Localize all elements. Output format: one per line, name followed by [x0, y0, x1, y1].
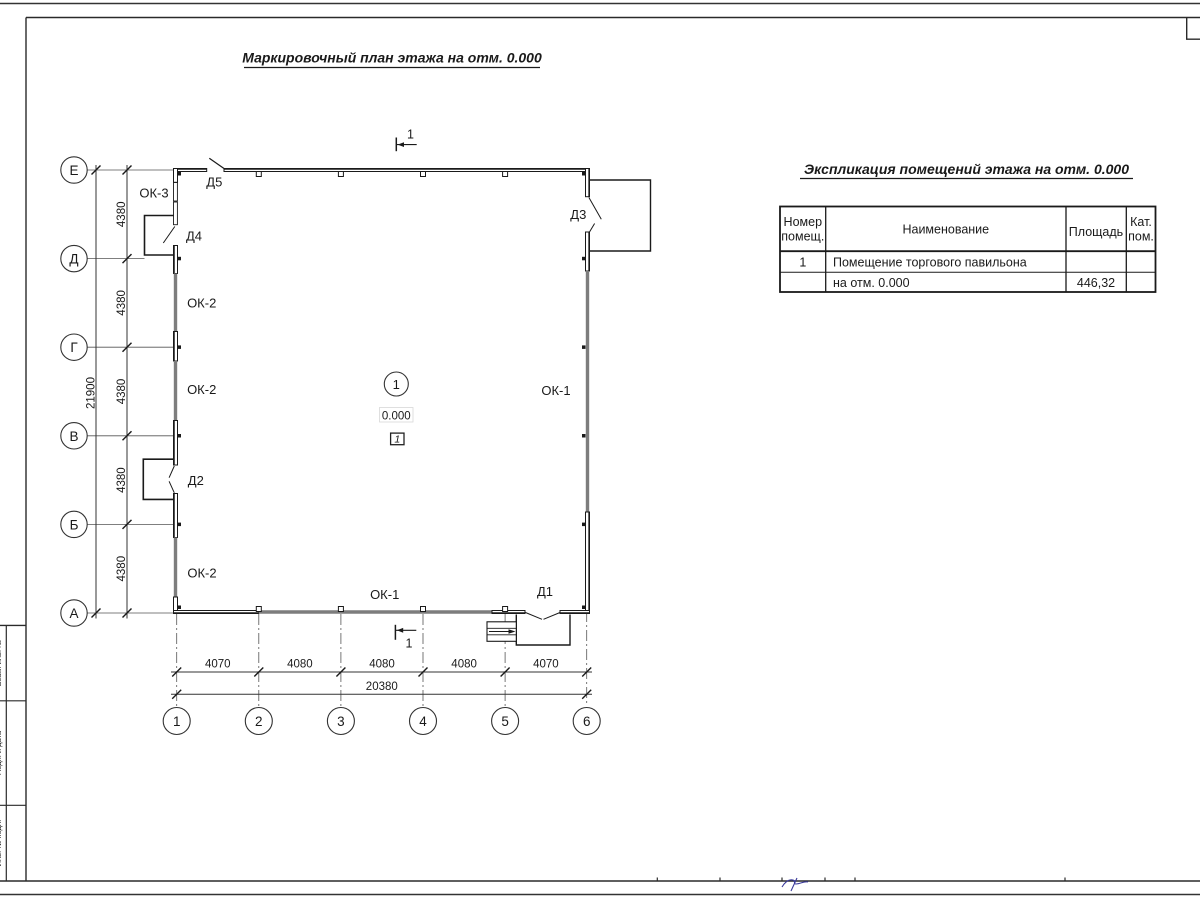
svg-text:5: 5	[501, 714, 509, 729]
svg-text:Д3: Д3	[570, 207, 586, 222]
svg-text:1: 1	[393, 377, 400, 392]
svg-text:ОК-1: ОК-1	[541, 383, 570, 398]
svg-text:помещ.: помещ.	[781, 230, 824, 244]
svg-text:4080: 4080	[369, 659, 395, 671]
svg-text:Б: Б	[70, 517, 79, 532]
svg-text:20380: 20380	[366, 681, 398, 693]
svg-text:Экспликация помещений этажа на: Экспликация помещений этажа на отм. 0.00…	[804, 161, 1129, 177]
svg-text:446,32: 446,32	[1077, 276, 1115, 290]
svg-text:1: 1	[799, 256, 806, 270]
svg-text:4380: 4380	[116, 290, 128, 316]
svg-text:21900: 21900	[86, 377, 98, 409]
svg-text:1: 1	[407, 128, 414, 142]
svg-text:ОК-2: ОК-2	[187, 382, 216, 397]
svg-text:Маркировочный план этажа на от: Маркировочный план этажа на отм. 0.000	[242, 50, 542, 66]
svg-text:4380: 4380	[116, 556, 128, 582]
svg-text:Инв. № подл.: Инв. № подл.	[0, 820, 3, 867]
svg-text:6: 6	[583, 714, 591, 729]
svg-text:на отм. 0.000: на отм. 0.000	[833, 276, 910, 290]
svg-text:4380: 4380	[116, 202, 128, 228]
svg-text:Наименование: Наименование	[902, 223, 989, 237]
svg-text:Площадь: Площадь	[1069, 225, 1123, 239]
svg-text:Г: Г	[70, 340, 78, 355]
svg-text:ОК-1: ОК-1	[370, 587, 399, 602]
svg-text:А: А	[69, 606, 78, 621]
svg-text:ОК-2: ОК-2	[187, 296, 216, 311]
svg-text:1: 1	[394, 434, 400, 446]
svg-text:Помещение торгового павильона: Помещение торгового павильона	[833, 256, 1027, 270]
svg-text:4380: 4380	[116, 379, 128, 405]
svg-text:1: 1	[406, 637, 413, 651]
svg-text:Д2: Д2	[188, 473, 204, 488]
svg-text:Д1: Д1	[537, 584, 553, 599]
svg-text:Подп. и дата: Подп. и дата	[0, 730, 3, 775]
svg-text:Е: Е	[69, 163, 78, 178]
svg-text:Кат.: Кат.	[1130, 215, 1152, 229]
svg-text:1: 1	[173, 714, 181, 729]
svg-text:ОК-3: ОК-3	[139, 185, 168, 200]
svg-text:4: 4	[419, 714, 427, 729]
svg-text:2: 2	[255, 714, 263, 729]
svg-text:4080: 4080	[451, 659, 477, 671]
svg-text:4080: 4080	[287, 659, 313, 671]
svg-text:4070: 4070	[533, 659, 559, 671]
svg-text:0.000: 0.000	[382, 410, 411, 422]
svg-text:3: 3	[337, 714, 345, 729]
svg-text:4070: 4070	[205, 659, 231, 671]
svg-text:Д4: Д4	[186, 229, 202, 244]
svg-text:Д: Д	[69, 252, 78, 267]
svg-text:4380: 4380	[116, 467, 128, 493]
svg-text:В: В	[69, 429, 78, 444]
svg-text:Д5: Д5	[206, 175, 222, 190]
svg-text:пом.: пом.	[1128, 230, 1154, 244]
svg-text:Номер: Номер	[784, 215, 823, 229]
svg-text:ОК-2: ОК-2	[187, 566, 216, 581]
svg-text:Взам. инв. №: Взам. инв. №	[0, 640, 3, 686]
